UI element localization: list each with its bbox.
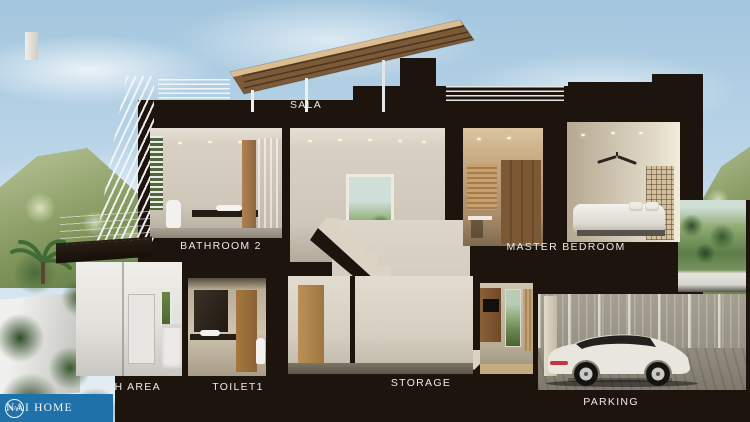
roof-railing-left: [158, 79, 230, 101]
chair: [471, 220, 483, 238]
cut-edge-right: [746, 200, 750, 422]
louver-window: [150, 136, 163, 210]
floor: [150, 228, 282, 238]
room-toilet-1: [188, 278, 266, 376]
roof-railing-right: [446, 86, 564, 102]
nai-home-logo: NAI NAI HOME: [0, 394, 113, 422]
downlight: [208, 141, 212, 143]
mirror-panel: [194, 290, 228, 332]
downlight: [178, 142, 182, 144]
wood-door: [242, 140, 256, 228]
logo-name: NAI HOME: [6, 402, 73, 414]
downlight: [611, 132, 615, 134]
room-bathroom-2: [150, 128, 282, 238]
pillow: [629, 202, 643, 211]
tv-wall-panel: [480, 288, 501, 342]
garden-window: [505, 289, 521, 347]
storage-door: [298, 285, 324, 363]
door: [128, 294, 155, 364]
sports-car: [540, 324, 700, 388]
partition-wall: [350, 276, 355, 374]
side-garden-view: [678, 200, 746, 292]
tv-screen: [483, 299, 499, 312]
green-window: [160, 290, 172, 326]
label-bathroom-2: BATHROOM 2: [180, 240, 262, 252]
room-parking: [538, 294, 746, 390]
hallway-tv-nook: [480, 283, 533, 374]
room-dressing-kitchenette: [463, 128, 543, 246]
washing-machine: [162, 324, 182, 370]
floor: [288, 363, 473, 374]
label-toilet-1: TOILET1: [212, 381, 264, 393]
sink: [200, 330, 220, 336]
downlight: [338, 139, 342, 141]
downlight: [477, 138, 481, 140]
label-wash-area: WASH AREA: [87, 381, 161, 393]
downlight: [308, 140, 312, 142]
shower-glass: [258, 138, 282, 232]
sink: [216, 205, 242, 211]
label-master-bedroom: MASTER BEDROOM: [506, 241, 625, 253]
room-master-bedroom: [567, 122, 680, 242]
downlight: [581, 134, 585, 136]
label-parking: PARKING: [583, 396, 639, 408]
room-storage: [288, 276, 473, 374]
wall-edge: [122, 262, 124, 376]
downlight: [639, 132, 643, 134]
label-sala: SALA: [290, 99, 322, 111]
label-storage: STORAGE: [391, 377, 451, 389]
ceiling-fan: [595, 150, 639, 168]
window-blind: [467, 164, 497, 210]
wood-door: [236, 290, 257, 372]
bed-frame: [577, 230, 665, 236]
toilet-fixture: [166, 200, 181, 228]
house-section-render: SALA BATHROOM 2 MASTER BEDROOM WASH AREA…: [0, 0, 750, 422]
toilet-fixture: [256, 338, 265, 364]
pillow: [645, 202, 659, 211]
wood-cabinets: [501, 160, 541, 244]
curtain: [523, 289, 533, 351]
downlight: [398, 140, 402, 142]
downlight: [368, 139, 372, 141]
exterior-pillar: [25, 32, 38, 60]
cut-wall-parapet: [652, 74, 703, 86]
downlight: [507, 137, 511, 139]
downlight: [422, 141, 426, 143]
room-wash-area: [76, 262, 182, 376]
floor-mat: [480, 364, 533, 374]
